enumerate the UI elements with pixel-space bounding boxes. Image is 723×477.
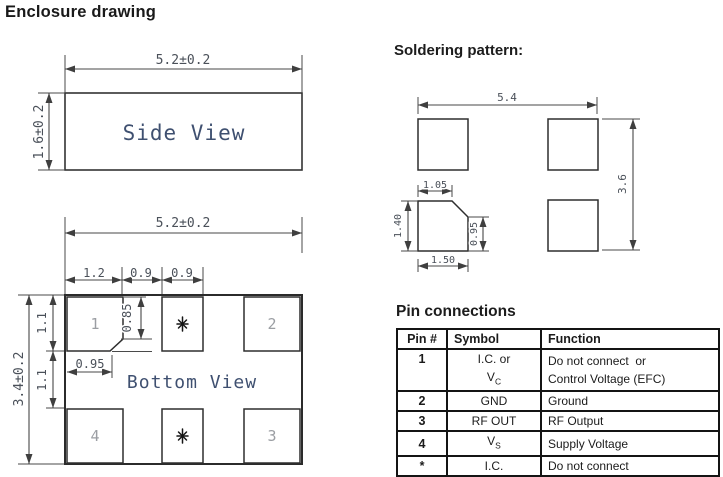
- pin-function: Supply Voltage: [541, 431, 719, 455]
- pin-symbol: RF OUT: [447, 411, 541, 431]
- pin-symbol: I.C. or VC: [447, 349, 541, 391]
- pin-number: 2: [397, 391, 447, 411]
- solder-pad-top-right: [548, 119, 598, 170]
- chamfer-horizontal-dim: 0.95: [76, 357, 105, 371]
- pin-function: Do not connect or Control Voltage (EFC): [541, 349, 719, 391]
- pad1-width-dim: 1.2: [83, 266, 105, 280]
- table-row: 4 VS Supply Voltage: [397, 431, 719, 455]
- soldering-pattern-drawing: 5.4 3.6 1.05 1.40 0.95: [393, 91, 640, 272]
- pad-1-number: 1: [90, 315, 99, 333]
- pin-symbol: VS: [447, 431, 541, 455]
- pin-symbol: GND: [447, 391, 541, 411]
- header-symbol: Symbol: [447, 329, 541, 349]
- header-pin: Pin #: [397, 329, 447, 349]
- table-row: 1 I.C. or VC Do not connect or Control V…: [397, 349, 719, 391]
- bottom-view-drawing: 5.2±0.2 1.2 0.9 0.9 3.4±0.2 1.1 1.1: [12, 216, 302, 464]
- pin-connections-table: Pin # Symbol Function 1 I.C. or VC Do no…: [396, 328, 720, 477]
- pad-4-number: 4: [90, 427, 99, 445]
- pad-row-gap-dim: 1.1: [35, 369, 49, 391]
- bottom-view-label: Bottom View: [127, 372, 257, 393]
- bottom-view-height-dim: 3.4±0.2: [12, 352, 27, 407]
- pad-3-number: 3: [267, 427, 276, 445]
- chamfer-vertical-dim: 0.85: [120, 304, 134, 333]
- pin-function: Do not connect: [541, 456, 719, 476]
- table-row: * I.C. Do not connect: [397, 456, 719, 476]
- pin-number: 4: [397, 431, 447, 455]
- side-view-drawing: 5.2±0.2 1.6±0.2 Side View: [32, 53, 302, 170]
- table-header-row: Pin # Symbol Function: [397, 329, 719, 349]
- pad-2-number: 2: [267, 315, 276, 333]
- pin-symbol: I.C.: [447, 456, 541, 476]
- solder-chamfer-height-dim: 0.95: [469, 222, 480, 246]
- solder-height-dim: 3.6: [616, 174, 629, 194]
- solder-pad-top-left: [418, 119, 468, 170]
- solder-pad-bottom-right: [548, 200, 598, 251]
- table-row: 2 GND Ground: [397, 391, 719, 411]
- symbol-subscript: C: [495, 376, 501, 386]
- side-view-label: Side View: [123, 121, 246, 145]
- pin-number: *: [397, 456, 447, 476]
- enclosure-drawing-page: Enclosure drawing Soldering pattern: Pin…: [0, 0, 723, 477]
- symbol-subscript: S: [495, 441, 501, 451]
- solder-pad-top-dim: 1.05: [423, 180, 447, 191]
- side-view-width-dim: 5.2±0.2: [156, 53, 211, 68]
- pad-gap-dim: 0.9: [130, 266, 152, 280]
- symbol-base: V: [487, 370, 495, 384]
- solder-width-dim: 5.4: [497, 91, 517, 104]
- symbol-base: V: [487, 434, 495, 448]
- pin-function: RF Output: [541, 411, 719, 431]
- side-view-height-dim: 1.6±0.2: [32, 105, 47, 160]
- table-row: 3 RF OUT RF Output: [397, 411, 719, 431]
- symbol-line1: I.C. or: [478, 352, 511, 366]
- pin-number: 3: [397, 411, 447, 431]
- pad-row-height-dim: 1.1: [35, 312, 49, 334]
- mid-pad-width-dim: 0.9: [171, 266, 193, 280]
- bottom-view-width-dim: 5.2±0.2: [156, 216, 211, 231]
- solder-pad-bottom-left-chamfered: [418, 201, 468, 251]
- solder-pad-height-dim: 1.40: [393, 214, 404, 238]
- pin-number: 1: [397, 349, 447, 391]
- header-function: Function: [541, 329, 719, 349]
- pin-function: Ground: [541, 391, 719, 411]
- solder-pad-width-dim: 1.50: [431, 255, 455, 266]
